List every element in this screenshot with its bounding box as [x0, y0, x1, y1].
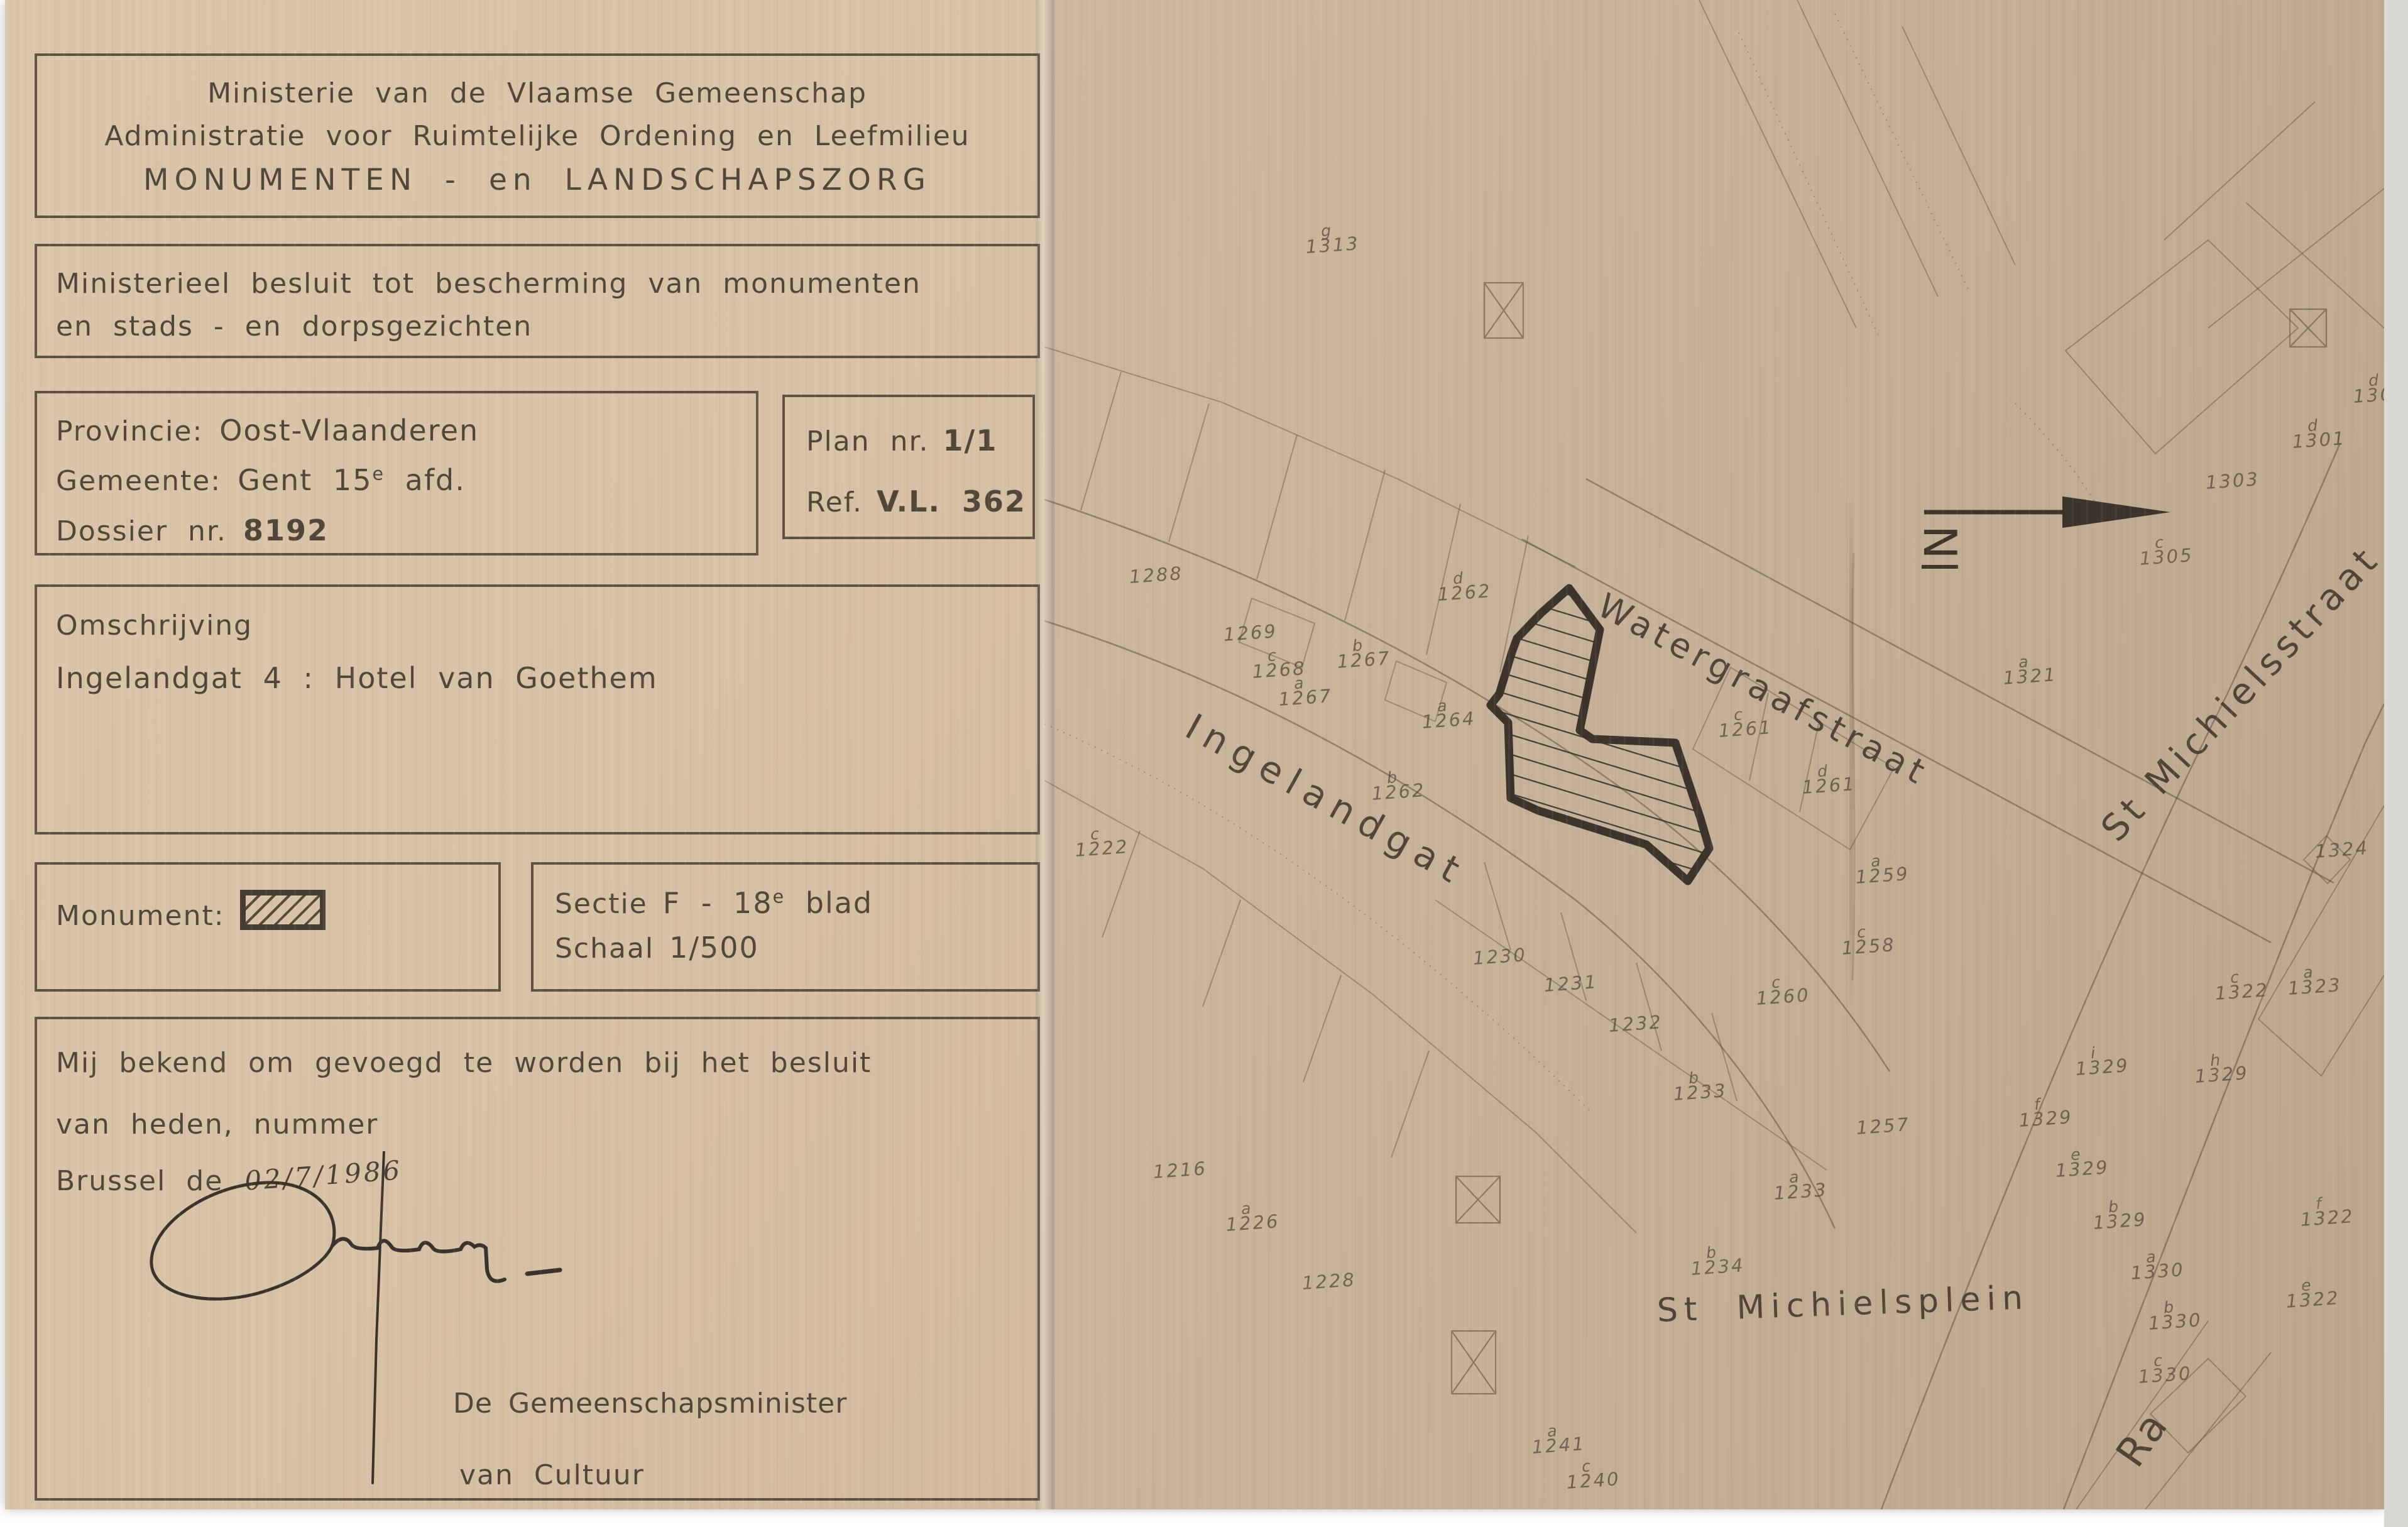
municipality-row: Gemeente:Gent 15e afd.	[56, 458, 756, 503]
description-label: Omschrijving	[56, 605, 1037, 647]
sectie-schaal-box: SectieF - 18e blad Schaal1/500	[531, 862, 1040, 992]
plan-value: 1/1	[943, 424, 998, 457]
parcel-number: b1329	[2091, 1195, 2147, 1234]
description-box: Omschrijving Ingelandgat 4 : Hotel van G…	[35, 584, 1040, 835]
parcel-number: a1267	[1277, 672, 1333, 710]
scanned-plan-sheet: Ministerie van de Vlaamse Gemeenschap Ad…	[5, 0, 2384, 1509]
ministry-line: Ministerie van de Vlaamse Gemeenschap	[37, 72, 1037, 115]
parcel-number: f1322	[2299, 1192, 2355, 1230]
parcel-number: d1300	[2351, 369, 2384, 407]
dossier-row: Dossier nr.8192	[56, 508, 756, 553]
parcel-number: f1329	[2017, 1093, 2073, 1131]
parcel-number: c1330	[2137, 1349, 2192, 1387]
municipality-label: Gemeente:	[56, 465, 221, 497]
parcel-number: 1230	[1472, 944, 1528, 969]
parcel-number: 1228	[1301, 1269, 1357, 1294]
schaal-value: 1/500	[669, 931, 759, 965]
service-line: MONUMENTEN - en LANDSCHAPSZORG	[37, 158, 1037, 204]
parcel-number: b1267	[1335, 634, 1391, 672]
cadastral-map: N IngelandgatWatergraafstraatSt Michiels…	[1044, 0, 2384, 1509]
parcel-number: h1329	[2193, 1049, 2249, 1087]
monument-legend-label: Monument:	[56, 900, 225, 932]
decree-line1: Ministerieel besluit tot bescherming van…	[56, 263, 1037, 305]
parcel-number: 1303	[2205, 468, 2260, 493]
schaal-label: Schaal	[555, 933, 654, 965]
dossier-label: Dossier nr.	[56, 515, 227, 547]
parcel-number: b1234	[1689, 1241, 1745, 1279]
parcel-number: c1258	[1840, 921, 1896, 959]
schaal-row: Schaal1/500	[555, 926, 1037, 970]
crossed-box-symbols	[1452, 283, 2326, 1394]
parcel-number: a1323	[2286, 961, 2342, 999]
sectie-value: F - 18e blad	[663, 886, 873, 920]
parcel-number: c1240	[1565, 1455, 1621, 1493]
form-panel: Ministerie van de Vlaamse Gemeenschap Ad…	[5, 0, 1044, 1509]
parcel-number: a1321	[2001, 650, 2057, 689]
province-label: Provincie:	[56, 415, 203, 447]
parcel-number: a1330	[2129, 1245, 2185, 1284]
parcel-number: 1324	[2314, 837, 2370, 862]
statement-line1: Mij bekend om gevoegd te worden bij het …	[56, 1042, 872, 1085]
monument-hatch-swatch	[240, 890, 326, 930]
header-box: Ministerie van de Vlaamse Gemeenschap Ad…	[35, 53, 1040, 218]
administration-line: Administratie voor Ruimtelijke Ordening …	[37, 115, 1037, 158]
parcel-number: b1262	[1370, 766, 1426, 804]
parcel-number: c1322	[2213, 966, 2269, 1004]
parcel-number: a1233	[1772, 1166, 1828, 1204]
parcel-number: e1322	[2284, 1274, 2340, 1312]
ref-row: Ref.V.L. 362	[806, 479, 1032, 524]
attestation-box: Mij bekend om gevoegd te worden bij het …	[35, 1017, 1040, 1501]
parcel-number: i1329	[2074, 1041, 2130, 1080]
ref-value: V.L. 362	[877, 484, 1026, 518]
ref-label: Ref.	[806, 486, 863, 518]
parcel-number: g1313	[1304, 219, 1360, 258]
parcel-number: c1305	[2138, 531, 2194, 569]
parcel-number: c1222	[1073, 823, 1129, 861]
north-label: N	[1913, 525, 1966, 559]
parcel-number: 1269	[1223, 620, 1278, 645]
parcel-number: a1264	[1420, 694, 1476, 733]
sectie-label: Sectie	[555, 888, 648, 920]
decree-box: Ministerieel besluit tot bescherming van…	[35, 244, 1040, 358]
parcel-number: 1232	[1608, 1011, 1663, 1036]
decree-line2: en stads - en dorpsgezichten	[56, 305, 1037, 348]
parcel-number: b1233	[1672, 1066, 1727, 1105]
parcel-number: b1330	[2147, 1296, 2203, 1334]
statement-line2: van heden, nummer	[56, 1103, 378, 1146]
description-value: Ingelandgat 4 : Hotel van Goethem	[56, 656, 1037, 701]
plan-row: Plan nr.1/1	[806, 419, 1032, 463]
signatory-title-line1: De Gemeenschapsminister	[453, 1382, 847, 1425]
plan-label: Plan nr.	[806, 425, 929, 457]
province-value: Oost-Vlaanderen	[219, 413, 479, 447]
monument-legend-box: Monument:	[35, 862, 501, 992]
parcel-number: d1261	[1800, 760, 1856, 798]
parcel-number: d1262	[1436, 567, 1492, 605]
parcel-number: e1329	[2054, 1143, 2110, 1181]
parcel-number: a1241	[1530, 1420, 1586, 1458]
parcel-number: 1231	[1543, 971, 1599, 996]
province-box: Provincie:Oost-Vlaanderen Gemeente:Gent …	[35, 391, 758, 556]
parcel-number: a1259	[1854, 850, 1910, 888]
sectie-row: SectieF - 18e blad	[555, 881, 1037, 926]
parcel-number: a1226	[1224, 1197, 1280, 1235]
parcel-number: d1301	[2290, 414, 2346, 452]
parcel-number: 1257	[1856, 1114, 1911, 1139]
parcel-number: c1260	[1754, 971, 1810, 1009]
municipality-value: Gent 15e afd.	[238, 463, 466, 497]
parcel-number: c1261	[1717, 703, 1773, 742]
dossier-value: 8192	[243, 513, 329, 547]
signatory-title-line2: van Cultuur	[459, 1454, 645, 1497]
north-arrow: N	[1913, 496, 2170, 567]
scanner-edge	[2384, 0, 2408, 1527]
plan-ref-box: Plan nr.1/1 Ref.V.L. 362	[782, 395, 1035, 539]
parcel-number: 1288	[1129, 562, 1184, 588]
parcel-number: 1216	[1152, 1158, 1208, 1183]
province-row: Provincie:Oost-Vlaanderen	[56, 408, 756, 453]
